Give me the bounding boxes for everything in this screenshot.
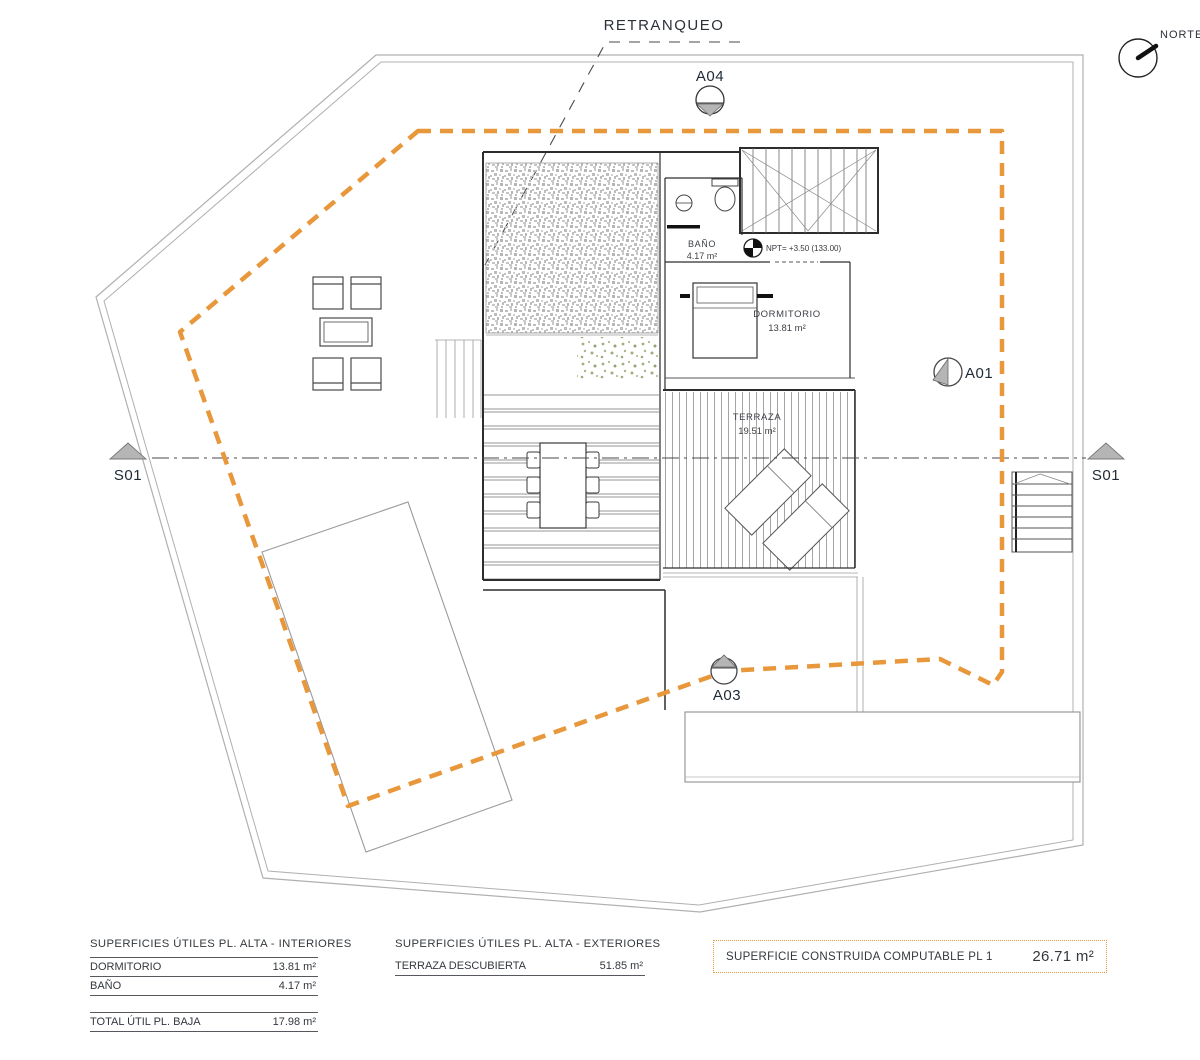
table-interiores: SUPERFICIES ÚTILES PL. ALTA - INTERIORES… (90, 938, 318, 1032)
total-value: 17.98 m² (273, 1016, 316, 1028)
marker-s01-left-label: S01 (114, 467, 142, 484)
bathroom (665, 178, 742, 262)
total-label: TOTAL ÚTIL PL. BAJA (90, 1016, 201, 1028)
row-label: BAÑO (90, 980, 121, 992)
row-value: 51.85 m² (600, 960, 643, 972)
floor-plan-canvas: RETRANQUEO NORTE (0, 0, 1200, 1060)
marker-a01: A01 (933, 358, 993, 386)
table-exteriores-title: SUPERFICIES ÚTILES PL. ALTA - EXTERIORES (395, 938, 645, 950)
toilet-bowl-icon (715, 187, 735, 211)
marker-s01-right-label: S01 (1092, 467, 1120, 484)
table-interiores-title: SUPERFICIES ÚTILES PL. ALTA - INTERIORES (90, 938, 318, 950)
room-terraza-name: TERRAZA (733, 412, 782, 423)
marker-s01-right: S01 (1088, 443, 1124, 484)
room-terraza-area: 19.51 m² (738, 426, 776, 437)
outdoor-furniture (313, 277, 381, 390)
table-row: DORMITORIO 13.81 m² (90, 958, 318, 977)
table-row: TERRAZA DESCUBIERTA 51.85 m² (395, 957, 645, 976)
row-value: 4.17 m² (279, 980, 316, 992)
room-dormitorio-area: 13.81 m² (768, 323, 806, 334)
pergola-dining (484, 393, 659, 579)
building: NPT= +3.50 (133.00) (262, 148, 1080, 852)
gravel-roof (486, 163, 658, 333)
row-label: TERRAZA DESCUBIERTA (395, 960, 526, 972)
lower-terrace (685, 712, 1080, 782)
vegetation-patch (577, 337, 658, 381)
level-marker: NPT= +3.50 (133.00) (744, 239, 841, 257)
retranqueo-label: RETRANQUEO (604, 17, 725, 34)
marker-a04: A04 (696, 68, 724, 116)
computable-value: 26.71 m² (1032, 948, 1094, 965)
table-total-row: TOTAL ÚTIL PL. BAJA 17.98 m² (90, 1012, 318, 1032)
north-label: NORTE (1160, 29, 1200, 41)
marker-a04-label: A04 (696, 68, 724, 85)
level-note: NPT= +3.50 (133.00) (766, 244, 841, 253)
bedroom (680, 262, 850, 378)
marker-a03: A03 (711, 655, 741, 704)
computable-label: SUPERFICIE CONSTRUIDA COMPUTABLE PL 1 (726, 951, 993, 963)
computable-surface-box: SUPERFICIE CONSTRUIDA COMPUTABLE PL 1 26… (713, 940, 1107, 973)
stair-core (740, 148, 878, 233)
table-row: BAÑO 4.17 m² (90, 977, 318, 996)
marker-a03-label: A03 (713, 687, 741, 704)
row-value: 13.81 m² (273, 961, 316, 973)
room-bano-area: 4.17 m² (687, 251, 718, 261)
shower-partition (667, 225, 700, 229)
marker-a01-label: A01 (965, 365, 993, 382)
marker-s01-left: S01 (110, 443, 146, 484)
exterior-stairs (1012, 472, 1072, 552)
pool-outline (262, 502, 512, 852)
row-label: DORMITORIO (90, 961, 161, 973)
room-dormitorio-name: DORMITORIO (753, 309, 821, 320)
toilet-tank-icon (712, 179, 738, 186)
room-bano-name: BAÑO (688, 239, 716, 249)
north-indicator: NORTE (1119, 29, 1200, 77)
table-exteriores: SUPERFICIES ÚTILES PL. ALTA - EXTERIORES… (395, 938, 645, 976)
